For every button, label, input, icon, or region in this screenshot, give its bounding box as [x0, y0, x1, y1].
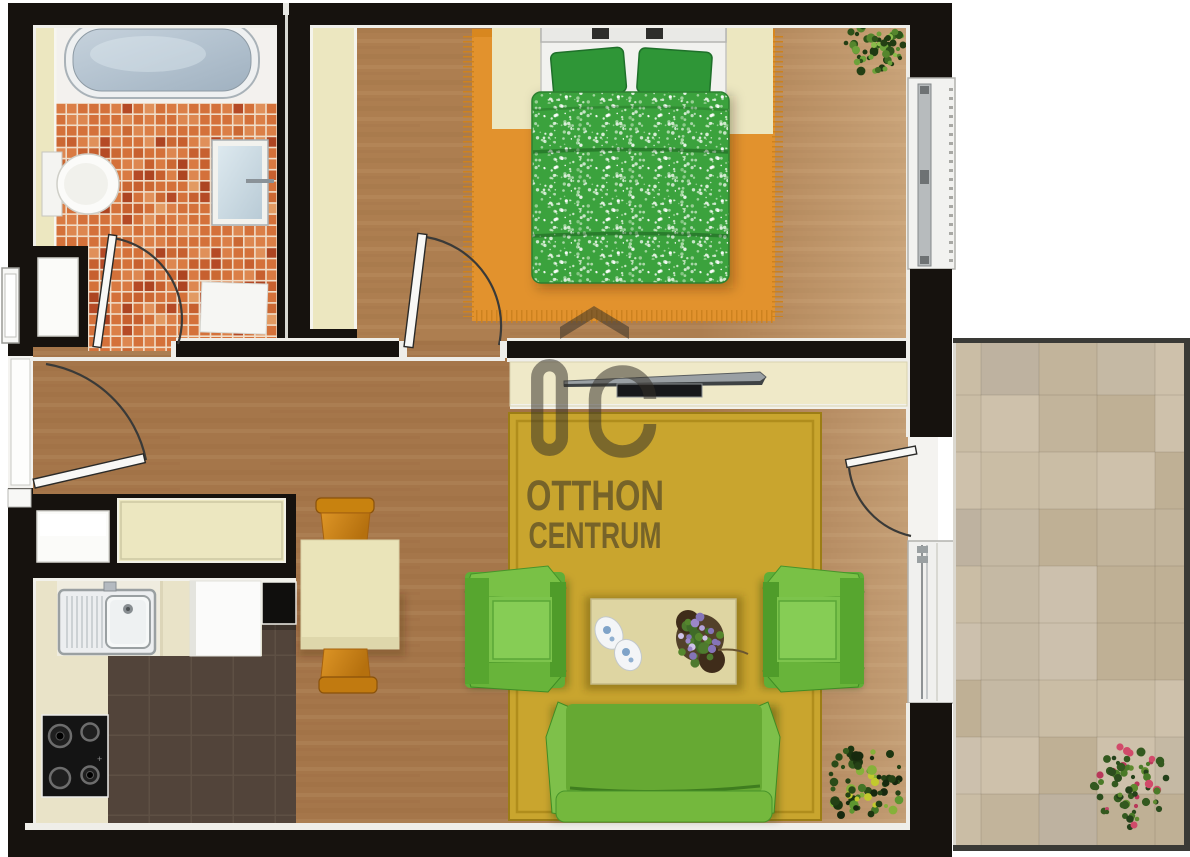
svg-text:OTTHON: OTTHON: [526, 472, 664, 520]
svg-text:+: +: [97, 754, 102, 764]
svg-text:CENTRUM: CENTRUM: [528, 515, 661, 556]
